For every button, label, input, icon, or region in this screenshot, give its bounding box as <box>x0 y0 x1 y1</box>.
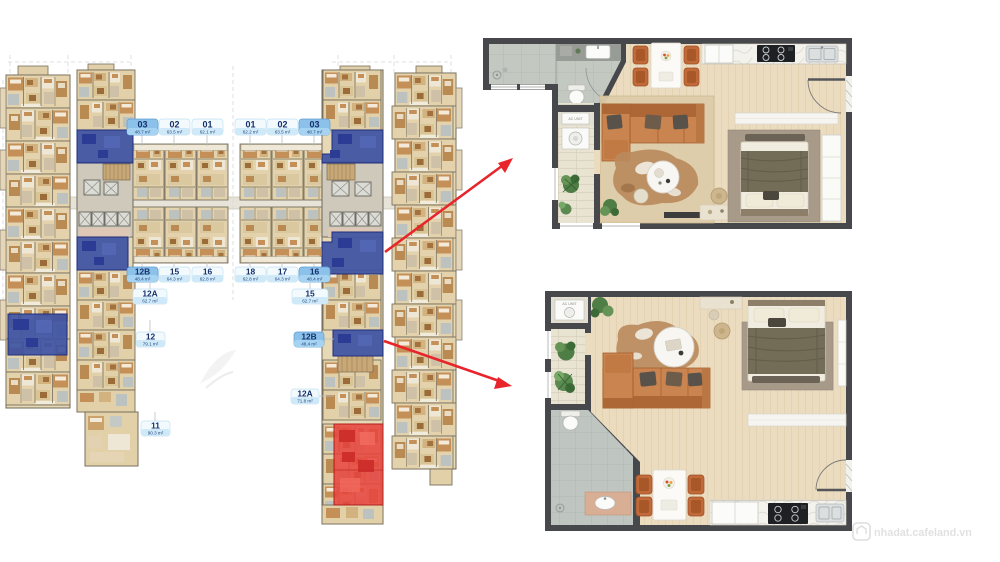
svg-text:17: 17 <box>278 267 288 277</box>
svg-text:AC UNIT: AC UNIT <box>568 117 583 121</box>
svg-text:79.1 m²: 79.1 m² <box>143 342 159 347</box>
svg-text:64.3 m²: 64.3 m² <box>167 277 183 282</box>
svg-text:62.7 m²: 62.7 m² <box>302 299 318 304</box>
svg-text:48.4 m²: 48.4 m² <box>307 277 323 282</box>
svg-text:62.1 m²: 62.1 m² <box>200 130 216 135</box>
svg-text:03: 03 <box>137 120 147 130</box>
svg-text:16: 16 <box>310 267 320 277</box>
svg-text:71.8 m²: 71.8 m² <box>297 399 313 404</box>
svg-text:01: 01 <box>245 120 255 130</box>
svg-text:03: 03 <box>309 120 319 130</box>
svg-text:15: 15 <box>305 289 315 299</box>
svg-text:64.3 m²: 64.3 m² <box>275 277 291 282</box>
svg-text:62.7 m²: 62.7 m² <box>142 299 158 304</box>
svg-text:02: 02 <box>277 120 287 130</box>
svg-text:12: 12 <box>146 332 156 342</box>
svg-text:12B: 12B <box>301 332 316 342</box>
svg-text:11: 11 <box>151 421 160 431</box>
svg-text:62.2 m²: 62.2 m² <box>243 130 259 135</box>
svg-text:16: 16 <box>203 267 213 277</box>
svg-text:48.7 m²: 48.7 m² <box>135 130 151 135</box>
svg-text:AC UNIT: AC UNIT <box>562 302 577 306</box>
svg-text:02: 02 <box>169 120 179 130</box>
svg-text:12A: 12A <box>142 289 157 299</box>
svg-text:48.4 m²: 48.4 m² <box>301 342 317 347</box>
svg-text:63.5 m²: 63.5 m² <box>167 130 183 135</box>
svg-text:nhadat.cafeland.vn: nhadat.cafeland.vn <box>874 527 972 539</box>
svg-text:48.4 m²: 48.4 m² <box>135 277 151 282</box>
svg-text:62.8 m²: 62.8 m² <box>200 277 216 282</box>
svg-text:15: 15 <box>170 267 180 277</box>
svg-text:63.5 m²: 63.5 m² <box>275 130 291 135</box>
svg-text:62.8 m²: 62.8 m² <box>243 277 259 282</box>
svg-text:01: 01 <box>202 120 212 130</box>
svg-text:12B: 12B <box>135 267 150 277</box>
svg-text:48.7 m²: 48.7 m² <box>307 130 323 135</box>
svg-text:12A: 12A <box>297 389 312 399</box>
svg-text:90.3 m²: 90.3 m² <box>148 431 164 436</box>
svg-text:18: 18 <box>246 267 256 277</box>
